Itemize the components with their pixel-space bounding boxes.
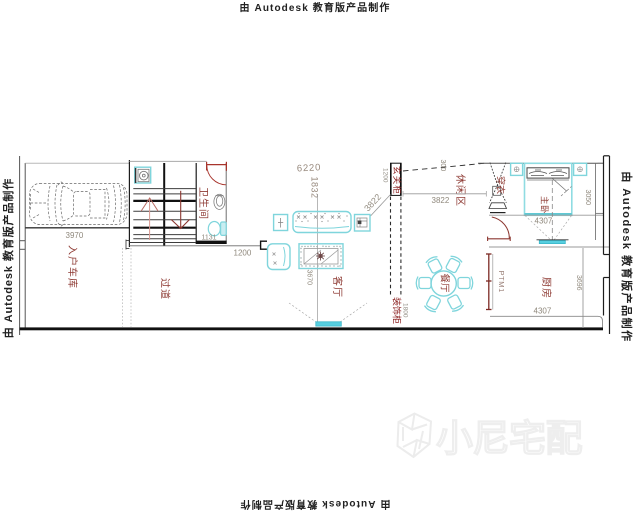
svg-text:穿衣: 穿衣 [496,176,507,194]
svg-text:1131: 1131 [202,235,217,242]
svg-text:1200: 1200 [382,168,389,183]
svg-text:由 Autodesk 教育版产品制作: 由 Autodesk 教育版产品制作 [240,1,391,14]
svg-text:6220: 6220 [297,162,322,174]
svg-text:客厅: 客厅 [331,276,344,298]
svg-text:300: 300 [439,160,446,172]
svg-text:1200: 1200 [234,249,252,258]
svg-text:3050: 3050 [584,190,591,206]
svg-text:由 Autodesk 教育版产品制作: 由 Autodesk 教育版产品制作 [1,178,15,338]
svg-text:休闲区: 休闲区 [454,174,467,207]
svg-text:入户车库: 入户车库 [66,245,79,289]
svg-text:1800: 1800 [402,303,409,318]
svg-text:由 Autodesk 教育版产品制作: 由 Autodesk 教育版产品制作 [620,171,634,342]
svg-text:1832: 1832 [310,177,320,199]
svg-text:厨房: 厨房 [540,277,553,299]
svg-text:3822: 3822 [432,196,450,205]
svg-text:4307: 4307 [534,307,552,316]
svg-text:玄关柜: 玄关柜 [392,166,402,195]
svg-text:餐厅: 餐厅 [439,274,451,294]
svg-text:3696: 3696 [575,275,582,291]
svg-text:3970: 3970 [66,231,84,240]
svg-text:卫生间: 卫生间 [197,187,210,220]
svg-text:PTM1: PTM1 [497,271,506,293]
svg-text:过道: 过道 [159,278,172,300]
svg-text:装饰柜: 装饰柜 [392,297,403,324]
svg-text:3670: 3670 [306,270,313,286]
svg-text:4307: 4307 [535,217,553,226]
svg-text:主卧: 主卧 [540,196,550,214]
svg-text:小尼宅配: 小尼宅配 [436,417,582,459]
svg-text:由 Autodesk 教育版产品制作: 由 Autodesk 教育版产品制作 [240,498,391,511]
